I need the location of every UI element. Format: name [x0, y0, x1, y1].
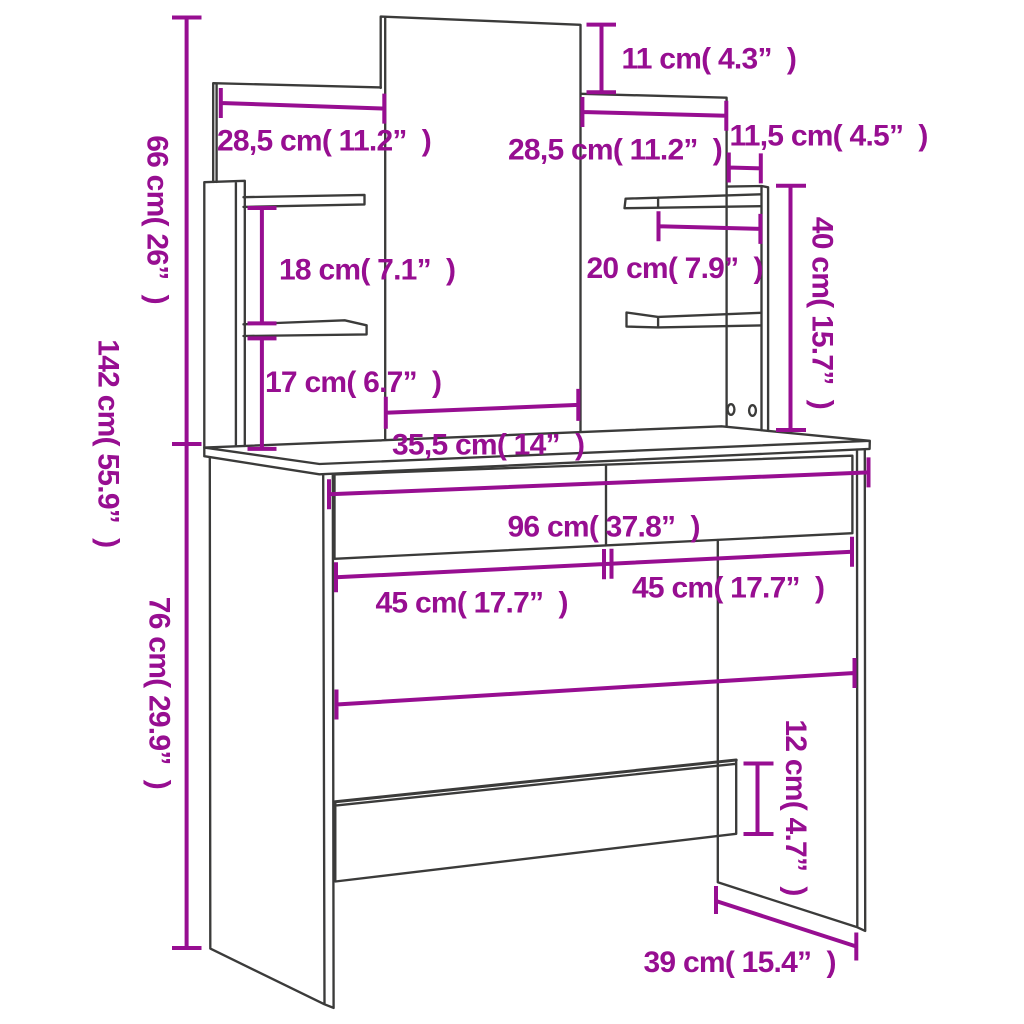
svg-text:18 cm( 7.1” ): 18 cm( 7.1” )	[279, 254, 455, 287]
svg-text:11 cm( 4.3” ): 11 cm( 4.3” )	[622, 42, 797, 75]
svg-text:11,5 cm( 4.5” ): 11,5 cm( 4.5” )	[730, 119, 928, 152]
svg-text:66 cm( 26” ): 66 cm( 26” )	[141, 135, 174, 304]
svg-text:45 cm( 17.7” ): 45 cm( 17.7” )	[632, 572, 824, 605]
svg-text:28,5 cm( 11.2” ): 28,5 cm( 11.2” )	[508, 134, 722, 167]
svg-text:142 cm( 55.9” ): 142 cm( 55.9” )	[92, 339, 125, 547]
svg-text:12 cm( 4.7” ): 12 cm( 4.7” )	[779, 719, 812, 895]
svg-text:96 cm( 37.8” ): 96 cm( 37.8” )	[508, 511, 700, 544]
svg-text:76 cm( 29.9” ): 76 cm( 29.9” )	[143, 597, 176, 789]
svg-text:20 cm( 7.9” ): 20 cm( 7.9” )	[587, 252, 763, 285]
svg-text:35,5 cm( 14” ): 35,5 cm( 14” )	[392, 429, 584, 462]
svg-text:39 cm( 15.4” ): 39 cm( 15.4” )	[644, 946, 836, 979]
svg-text:40 cm( 15.7” ): 40 cm( 15.7” )	[806, 217, 839, 409]
svg-text:45 cm( 17.7” ): 45 cm( 17.7” )	[376, 587, 568, 620]
svg-text:17 cm( 6.7” ): 17 cm( 6.7” )	[265, 366, 441, 399]
svg-text:28,5 cm( 11.2” ): 28,5 cm( 11.2” )	[217, 124, 431, 157]
